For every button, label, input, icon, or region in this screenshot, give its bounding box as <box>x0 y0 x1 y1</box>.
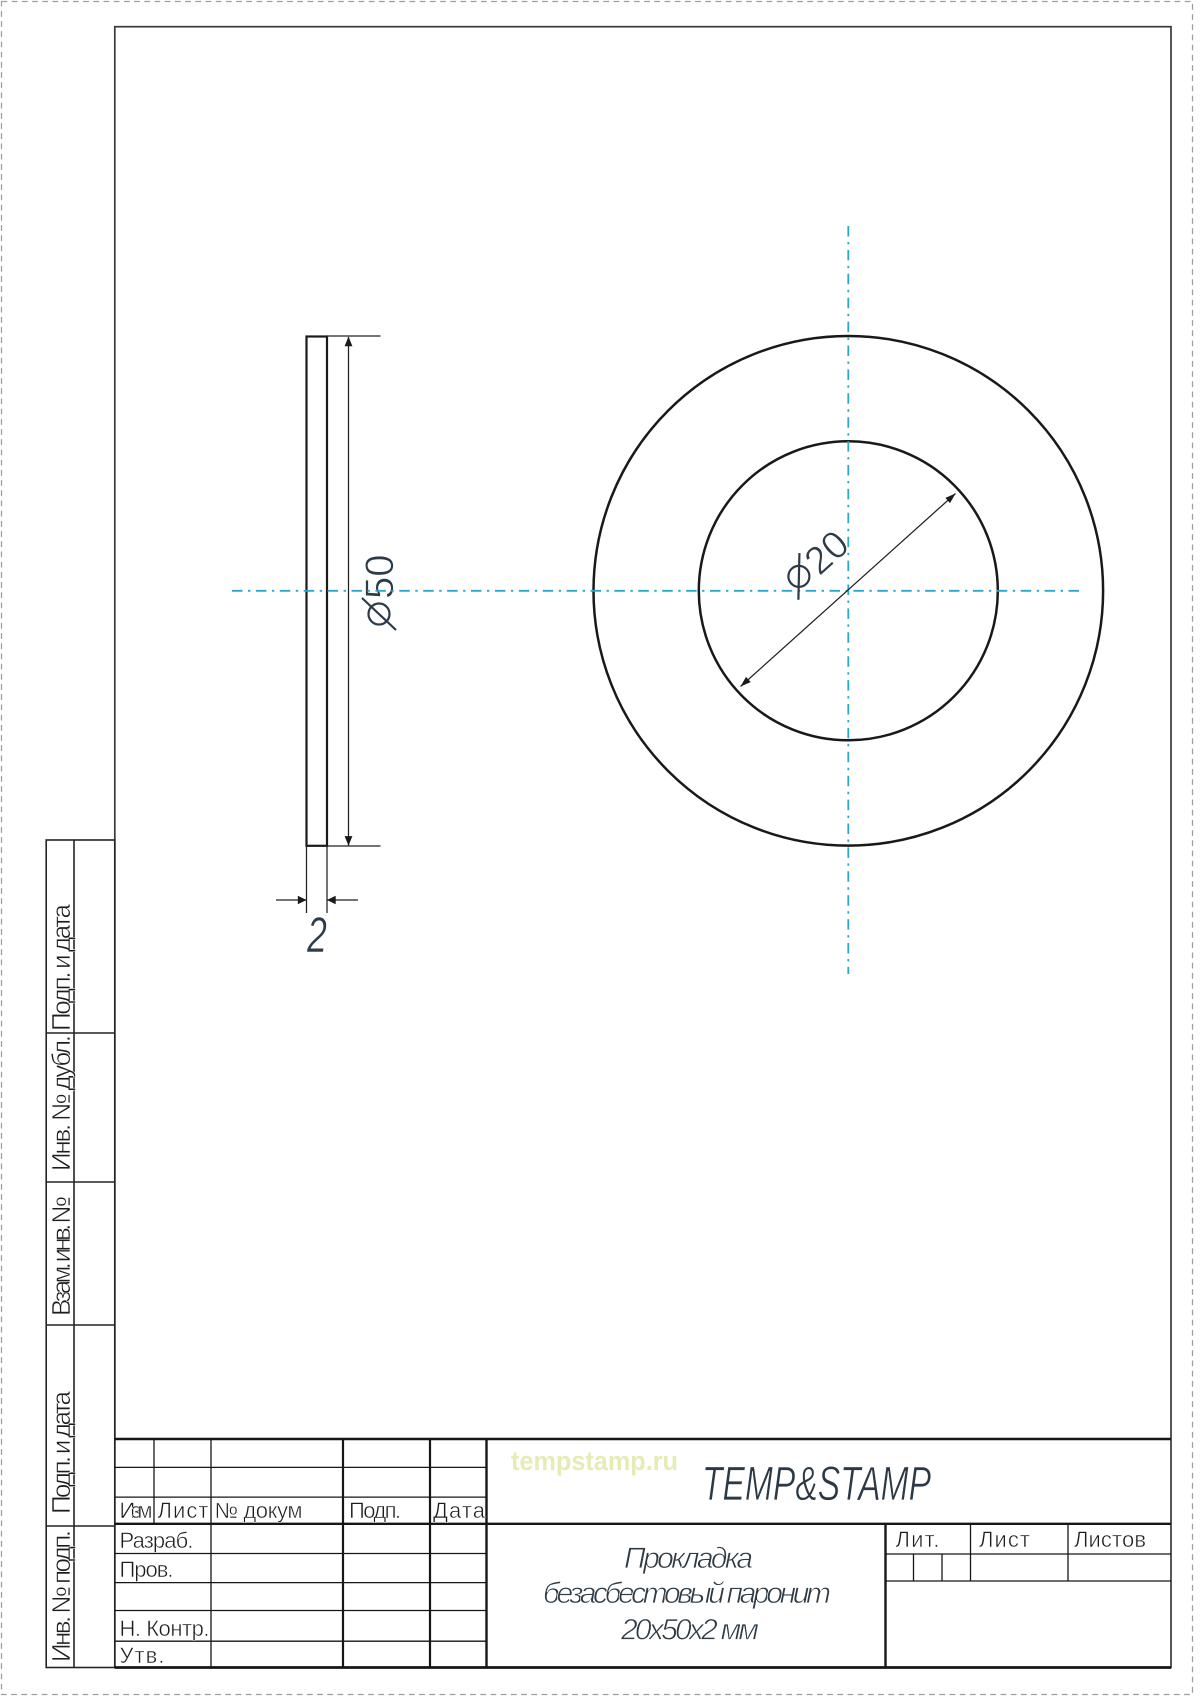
svg-text:Подп. и дата: Подп. и дата <box>46 1390 76 1514</box>
svg-text:Лист: Лист <box>979 1527 1030 1552</box>
svg-text:безасбестовый паронит: безасбестовый паронит <box>543 1577 831 1610</box>
svg-text:tempstamp.ru: tempstamp.ru <box>511 1446 678 1476</box>
svg-text:Подп.: Подп. <box>349 1498 401 1523</box>
svg-text:50: 50 <box>358 555 402 600</box>
svg-text:Лит.: Лит. <box>896 1527 940 1552</box>
svg-text:Подп. и дата: Подп. и дата <box>46 903 76 1031</box>
svg-text:Прокладка: Прокладка <box>624 1542 753 1575</box>
svg-text:Разраб.: Разраб. <box>120 1528 194 1553</box>
svg-text:Утв.: Утв. <box>120 1643 165 1668</box>
svg-text:Инв. № подп.: Инв. № подп. <box>46 1530 76 1662</box>
svg-text:Листов: Листов <box>1074 1527 1146 1552</box>
svg-text:Изм: Изм <box>120 1498 153 1523</box>
svg-text:2: 2 <box>306 907 327 963</box>
svg-text:Инв. № дубл.: Инв. № дубл. <box>46 1035 76 1171</box>
svg-text:20х50х2 мм: 20х50х2 мм <box>620 1614 759 1647</box>
svg-text:Взам. инв. №: Взам. инв. № <box>46 1196 76 1316</box>
svg-text:TEMP&STAMP: TEMP&STAMP <box>702 1458 931 1511</box>
svg-text:Пров.: Пров. <box>120 1557 174 1582</box>
svg-text:Дата: Дата <box>433 1498 486 1523</box>
svg-text:Лист: Лист <box>158 1498 209 1523</box>
svg-text:№ докум: № докум <box>215 1498 303 1523</box>
svg-text:Н. Контр.: Н. Контр. <box>120 1616 210 1641</box>
svg-text:20: 20 <box>797 522 858 583</box>
